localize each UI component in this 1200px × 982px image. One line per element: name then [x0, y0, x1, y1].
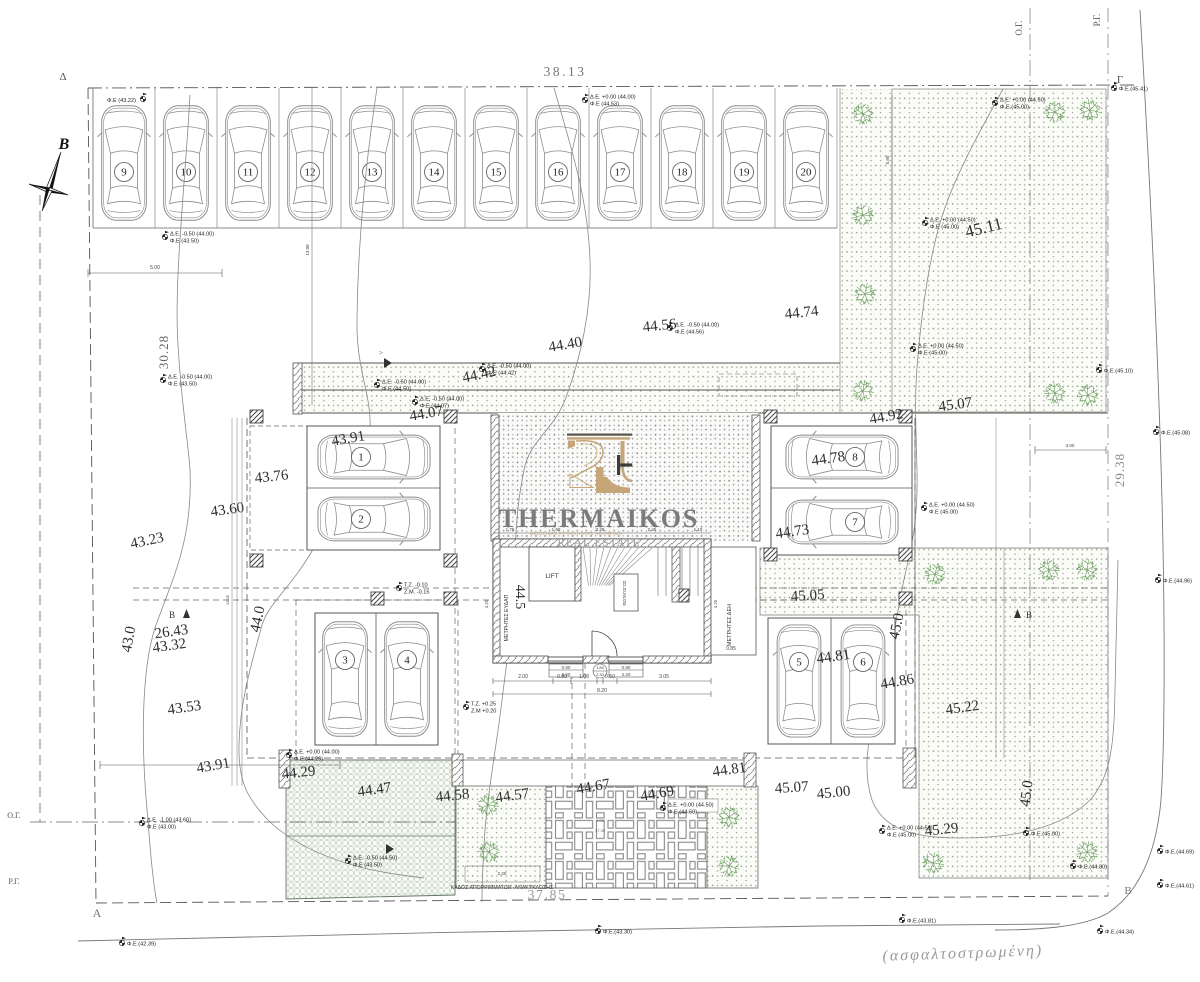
svg-text:15: 15 — [491, 167, 503, 179]
svg-text:Δ.Ε. -0.50 (44.00): Δ.Ε. -0.50 (44.00) — [170, 232, 214, 238]
svg-text:14: 14 — [429, 167, 441, 179]
svg-text:45.07: 45.07 — [774, 779, 809, 797]
svg-text:Δ.Ε. +0.00 (44.00): Δ.Ε. +0.00 (44.00) — [590, 95, 636, 101]
svg-text:Δ.Ε. -1.00 (43.60): Δ.Ε. -1.00 (43.60) — [147, 818, 191, 824]
svg-text:Δ.Ε. +0.00 (44.50): Δ.Ε. +0.00 (44.50) — [929, 503, 975, 509]
svg-text:Δ.Ε. -0.50 (44.00): Δ.Ε. -0.50 (44.00) — [487, 364, 531, 370]
svg-text:Φ.Ε.(43.30): Φ.Ε.(43.30) — [603, 930, 632, 936]
svg-text:0.85: 0.85 — [726, 646, 736, 652]
svg-text:5.00: 5.00 — [150, 265, 160, 271]
svg-text:4: 4 — [404, 655, 410, 667]
svg-text:29.38: 29.38 — [1112, 453, 1127, 487]
svg-text:Φ.Ε (45.00): Φ.Ε (45.00) — [887, 833, 916, 839]
svg-text:Δ.Ε. +0.00 (44.50): Δ.Ε. +0.00 (44.50) — [887, 826, 933, 832]
svg-text:8.20: 8.20 — [597, 688, 607, 694]
svg-text:Φ.Ε (43.00): Φ.Ε (43.00) — [147, 825, 176, 831]
svg-text:Φ.Ε (44.56): Φ.Ε (44.56) — [675, 330, 704, 336]
svg-text:Φ.Ε.(44.96): Φ.Ε.(44.96) — [1163, 579, 1192, 585]
svg-text:0.90: 0.90 — [622, 665, 631, 670]
svg-text:Δ.Ε. +0.00 (44.50): Δ.Ε. +0.00 (44.50) — [668, 803, 714, 809]
svg-text:Φ.Ε (45.00): Φ.Ε (45.00) — [929, 510, 958, 516]
svg-text:Τ.Ζ. +0.25: Τ.Ζ. +0.25 — [471, 702, 496, 708]
svg-text:Φ.Ε (44.07): Φ.Ε (44.07) — [420, 404, 449, 410]
svg-text:43.32: 43.32 — [152, 636, 188, 657]
svg-text:43.76: 43.76 — [254, 467, 290, 486]
svg-text:44.56: 44.56 — [642, 316, 678, 335]
svg-text:B: B — [1124, 885, 1131, 897]
svg-text:19: 19 — [739, 167, 751, 179]
svg-text:Φ.Ε.(45.41): Φ.Ε.(45.41) — [1119, 87, 1148, 93]
svg-text:Φ.Ε.(43.81): Φ.Ε.(43.81) — [907, 919, 936, 925]
svg-text:44.0: 44.0 — [248, 605, 269, 634]
svg-text:4.20: 4.20 — [484, 599, 489, 608]
svg-text:13.05: 13.05 — [225, 594, 230, 605]
svg-text:Δ.Ε. +0.00 (44.50): Δ.Ε. +0.00 (44.50) — [918, 344, 964, 350]
svg-text:3.00: 3.00 — [1066, 443, 1075, 448]
svg-text:43.23: 43.23 — [129, 530, 165, 553]
svg-text:Φ.Ε (43.22): Φ.Ε (43.22) — [107, 98, 136, 104]
svg-text:Φ.Ε (45.00): Φ.Ε (45.00) — [930, 225, 959, 231]
svg-text:45.0: 45.0 — [1017, 780, 1036, 808]
svg-text:Φ.Ε (44.50): Φ.Ε (44.50) — [382, 387, 411, 393]
svg-text:0.90: 0.90 — [557, 674, 567, 680]
svg-text:Δ: Δ — [59, 71, 66, 83]
svg-text:2: 2 — [358, 514, 364, 526]
svg-text:Γ: Γ — [1117, 74, 1123, 86]
svg-text:44.74: 44.74 — [784, 303, 820, 322]
svg-text:Φ.Ε.(45.08): Φ.Ε.(45.08) — [1161, 431, 1190, 437]
svg-text:3.05: 3.05 — [659, 674, 669, 680]
svg-text:43.0: 43.0 — [119, 625, 139, 654]
svg-text:Φ.Ε.(44.34): Φ.Ε.(44.34) — [1105, 930, 1134, 936]
svg-text:Φ.Ε (43.50): Φ.Ε (43.50) — [353, 863, 382, 869]
svg-text:Ρ.Γ.: Ρ.Γ. — [8, 877, 19, 886]
svg-text:1.80: 1.80 — [596, 665, 605, 670]
svg-text:11: 11 — [243, 167, 254, 179]
svg-text:Δ.Ε. -0.50 (44.00): Δ.Ε. -0.50 (44.00) — [168, 375, 212, 381]
svg-text:Δ.Ε. -0.50 (44.50): Δ.Ε. -0.50 (44.50) — [353, 856, 397, 862]
svg-text:Φ.Ε.(45.10): Φ.Ε.(45.10) — [1104, 369, 1133, 375]
svg-text:2.00: 2.00 — [518, 674, 528, 680]
svg-text:Δ.Ε. +0.00 (44.50): Δ.Ε. +0.00 (44.50) — [930, 218, 976, 224]
svg-text:Δ.Ε. +0.00 (44.00): Δ.Ε. +0.00 (44.00) — [294, 750, 340, 756]
svg-text:13.08: 13.08 — [305, 244, 310, 256]
svg-text:Ζ.Μ +0.20: Ζ.Μ +0.20 — [471, 709, 496, 715]
svg-text:43.91: 43.91 — [195, 755, 231, 777]
svg-text:45.0: 45.0 — [887, 612, 908, 641]
svg-text:8: 8 — [852, 452, 858, 464]
svg-text:Φ.Ε.(44.80): Φ.Ε.(44.80) — [1078, 865, 1107, 871]
svg-text:44.5: 44.5 — [512, 585, 527, 610]
svg-text:13: 13 — [367, 167, 379, 179]
svg-text:4.20: 4.20 — [713, 599, 718, 608]
svg-text:0.90: 0.90 — [562, 665, 571, 670]
svg-text:12: 12 — [305, 167, 316, 179]
svg-text:Δ.Ε. -0.50 (44.00): Δ.Ε. -0.50 (44.00) — [382, 380, 426, 386]
svg-text:1.08: 1.08 — [596, 818, 605, 823]
svg-text:44.40: 44.40 — [547, 334, 583, 356]
svg-text:B: B — [58, 136, 70, 153]
svg-text:16: 16 — [553, 167, 565, 179]
svg-text:Δ.Ε. -0.50 (44.00): Δ.Ε. -0.50 (44.00) — [675, 323, 719, 329]
svg-text:Ο.Γ.: Ο.Γ. — [7, 811, 20, 820]
svg-text:Φ.Ε (45.00): Φ.Ε (45.00) — [918, 351, 947, 357]
svg-text:ΜΕΤΡΗΤΕΣ ΕΥΔΑΠ: ΜΕΤΡΗΤΕΣ ΕΥΔΑΠ — [504, 594, 510, 641]
svg-text:2.20: 2.20 — [622, 672, 631, 677]
svg-text:B: B — [169, 610, 175, 620]
svg-text:ΜΕΤΡΗΤΕΣ ΔΕΗ: ΜΕΤΡΗΤΕΣ ΔΕΗ — [727, 604, 733, 646]
svg-text:ΦΩΤΑΓΩΓΟΣ: ΦΩΤΑΓΩΓΟΣ — [622, 580, 627, 606]
svg-text:5: 5 — [796, 657, 802, 669]
svg-text:43.60: 43.60 — [210, 500, 246, 521]
svg-text:LIFT: LIFT — [545, 573, 558, 580]
svg-text:B: B — [1026, 610, 1032, 620]
svg-text:Δ.Ε. +0.00 (44.50): Δ.Ε. +0.00 (44.50) — [1000, 98, 1046, 104]
svg-text:ΚΑΔΟΣ ΑΠΟΡΡΙΜΜΑΤΩΝ -ΑΝΑΚΥΚΛΩΣΗ: ΚΑΔΟΣ ΑΠΟΡΡΙΜΜΑΤΩΝ -ΑΝΑΚΥΚΛΩΣΗΣ — [451, 885, 553, 891]
svg-text:Φ.Ε (43.50): Φ.Ε (43.50) — [168, 382, 197, 388]
svg-text:45.00: 45.00 — [816, 783, 851, 802]
svg-text:Φ.Ε (44.29): Φ.Ε (44.29) — [294, 757, 323, 763]
svg-text:Φ.Ε (44.53): Φ.Ε (44.53) — [590, 102, 619, 108]
svg-text:Ζ.Μ. -0.15: Ζ.Μ. -0.15 — [404, 590, 430, 596]
svg-text:Φ.Ε (44.42): Φ.Ε (44.42) — [487, 371, 516, 377]
svg-text:6: 6 — [860, 657, 866, 669]
svg-text:ΜΕΣΙΤΙΚΕΣ ΣΥΝΑΛΛΑΓΕΣ ΑΚΙΝΗΤΩΝ: ΜΕΣΙΤΙΚΕΣ ΣΥΝΑΛΛΑΓΕΣ ΑΚΙΝΗΤΩΝ — [530, 531, 623, 536]
svg-text:1: 1 — [358, 452, 364, 464]
svg-text:Φ.Ε (43.50): Φ.Ε (43.50) — [170, 239, 199, 245]
svg-text:(ασφαλτοστρωμένη): (ασφαλτοστρωμένη) — [882, 942, 1043, 965]
svg-text:Φ.Ε (44.50): Φ.Ε (44.50) — [668, 810, 697, 816]
svg-text:Φ.Ε.(44.61): Φ.Ε.(44.61) — [1165, 884, 1194, 890]
svg-text:20: 20 — [801, 167, 813, 179]
svg-text:30.28: 30.28 — [156, 335, 171, 369]
svg-text:18: 18 — [677, 167, 689, 179]
svg-text:0.50: 0.50 — [605, 674, 615, 680]
svg-text:Φ.Ε.(44.69): Φ.Ε.(44.69) — [1165, 850, 1194, 856]
svg-text:Τ.Ζ. -0.10: Τ.Ζ. -0.10 — [404, 583, 428, 589]
svg-text:2.20: 2.20 — [498, 871, 507, 876]
svg-text:37.35: 37.35 — [595, 828, 606, 833]
svg-text:38.13: 38.13 — [544, 64, 587, 79]
svg-text:2.30: 2.30 — [596, 672, 605, 677]
svg-text:43.53: 43.53 — [167, 698, 203, 719]
svg-text:THERMAIKOS: THERMAIKOS — [499, 504, 699, 533]
svg-text:45.05: 45.05 — [790, 587, 825, 605]
svg-text:5.80: 5.80 — [885, 155, 890, 164]
svg-text:17: 17 — [615, 167, 627, 179]
svg-text:A: A — [93, 906, 102, 920]
svg-text:7: 7 — [852, 517, 858, 529]
svg-text:Δ.Ε. -0.50 (44.00): Δ.Ε. -0.50 (44.00) — [420, 397, 464, 403]
svg-text:>: > — [379, 349, 383, 357]
svg-text:3: 3 — [342, 655, 348, 667]
svg-text:Φ.Ε.(45.00): Φ.Ε.(45.00) — [1031, 832, 1060, 838]
svg-text:1.08: 1.08 — [579, 674, 589, 680]
svg-text:Ο.Γ.: Ο.Γ. — [1014, 20, 1024, 35]
svg-text:44.81: 44.81 — [712, 760, 748, 781]
svg-text:Φ.Ε.(42.39): Φ.Ε.(42.39) — [127, 942, 156, 948]
svg-text:REAL ESTATE: REAL ESTATE — [557, 537, 640, 549]
svg-text:9: 9 — [121, 167, 127, 179]
svg-text:Ρ.Γ.: Ρ.Γ. — [1092, 14, 1102, 27]
svg-text:10: 10 — [181, 167, 193, 179]
svg-text:Φ.Ε (45.00): Φ.Ε (45.00) — [1000, 105, 1029, 111]
